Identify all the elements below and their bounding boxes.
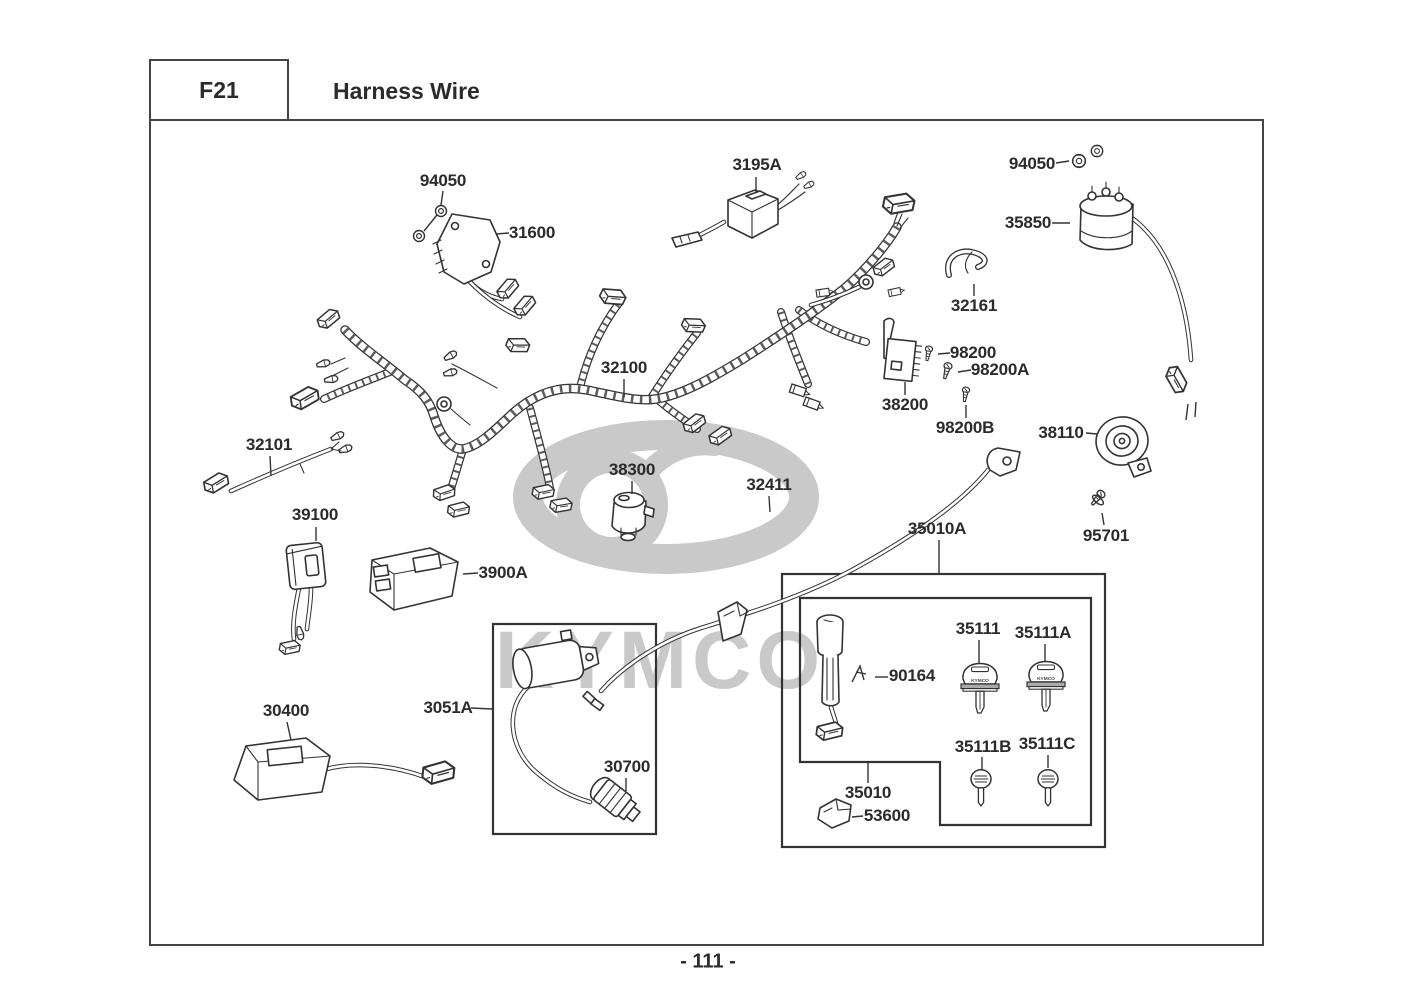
page-code: F21 (150, 60, 288, 120)
part-label-31600: 31600 (509, 223, 555, 243)
page-number: - 111 - (680, 951, 736, 974)
part-label-38200: 38200 (882, 395, 928, 415)
key-cover-53600-art (818, 799, 851, 828)
part-label-32100: 32100 (601, 358, 647, 378)
ring-terminal (859, 275, 873, 289)
part-label-32101: 32101 (246, 435, 292, 455)
part-label-30700: 30700 (604, 757, 650, 777)
part-label-32411: 32411 (746, 475, 791, 495)
page-title: Harness Wire (333, 78, 480, 105)
part-label-94050-right: 94050 (1009, 154, 1055, 174)
relay-3195a-art (672, 170, 815, 247)
part-label-39100: 39100 (292, 505, 338, 525)
part-label-35111: 35111 (956, 619, 1000, 639)
horn-38110-art (1089, 413, 1152, 507)
part-label-38110: 38110 (1038, 423, 1083, 443)
relay-39100-art (279, 542, 327, 656)
part-label-53600: 53600 (864, 806, 910, 826)
part-label-35111b: 35111B (955, 737, 1011, 757)
clip-90164-art (852, 666, 866, 682)
regulator-31600-art (414, 206, 501, 285)
part-label-94050-left: 94050 (420, 171, 466, 191)
key-brand-text: KYMCO (971, 678, 989, 684)
diagram-canvas: KYMCO (0, 0, 1415, 1000)
part-label-32161: 32161 (951, 296, 997, 316)
part-label-35010a: 35010A (908, 519, 966, 539)
part-label-35010: 35010 (845, 783, 891, 803)
part-label-30400: 30400 (263, 701, 309, 721)
part-label-35850: 35850 (1005, 213, 1051, 233)
part-label-3900a: 3900A (478, 563, 527, 583)
parts-catalog-page: KYMCO (0, 0, 1415, 1000)
part-label-98200a: 98200A (971, 360, 1029, 380)
part-label-3195a: 3195A (732, 155, 781, 175)
leader-lines (270, 161, 1104, 817)
part-label-35111a: 35111A (1015, 623, 1071, 643)
part-label-38300: 38300 (609, 460, 655, 480)
part-label-90164: 90164 (889, 666, 935, 686)
spark-plug-cap-30700-art (587, 774, 645, 827)
cdi-unit-3900a-art (370, 548, 458, 610)
ring-terminal (437, 397, 451, 411)
part-label-95701: 95701 (1083, 526, 1129, 546)
key-brand-text: KYMCO (1037, 676, 1055, 682)
part-label-98200b: 98200B (936, 418, 994, 438)
part-label-3051a: 3051A (423, 698, 472, 718)
band-32161-art (948, 251, 985, 275)
part-label-35111c: 35111C (1019, 734, 1075, 754)
ecu-30400-art (234, 738, 455, 800)
